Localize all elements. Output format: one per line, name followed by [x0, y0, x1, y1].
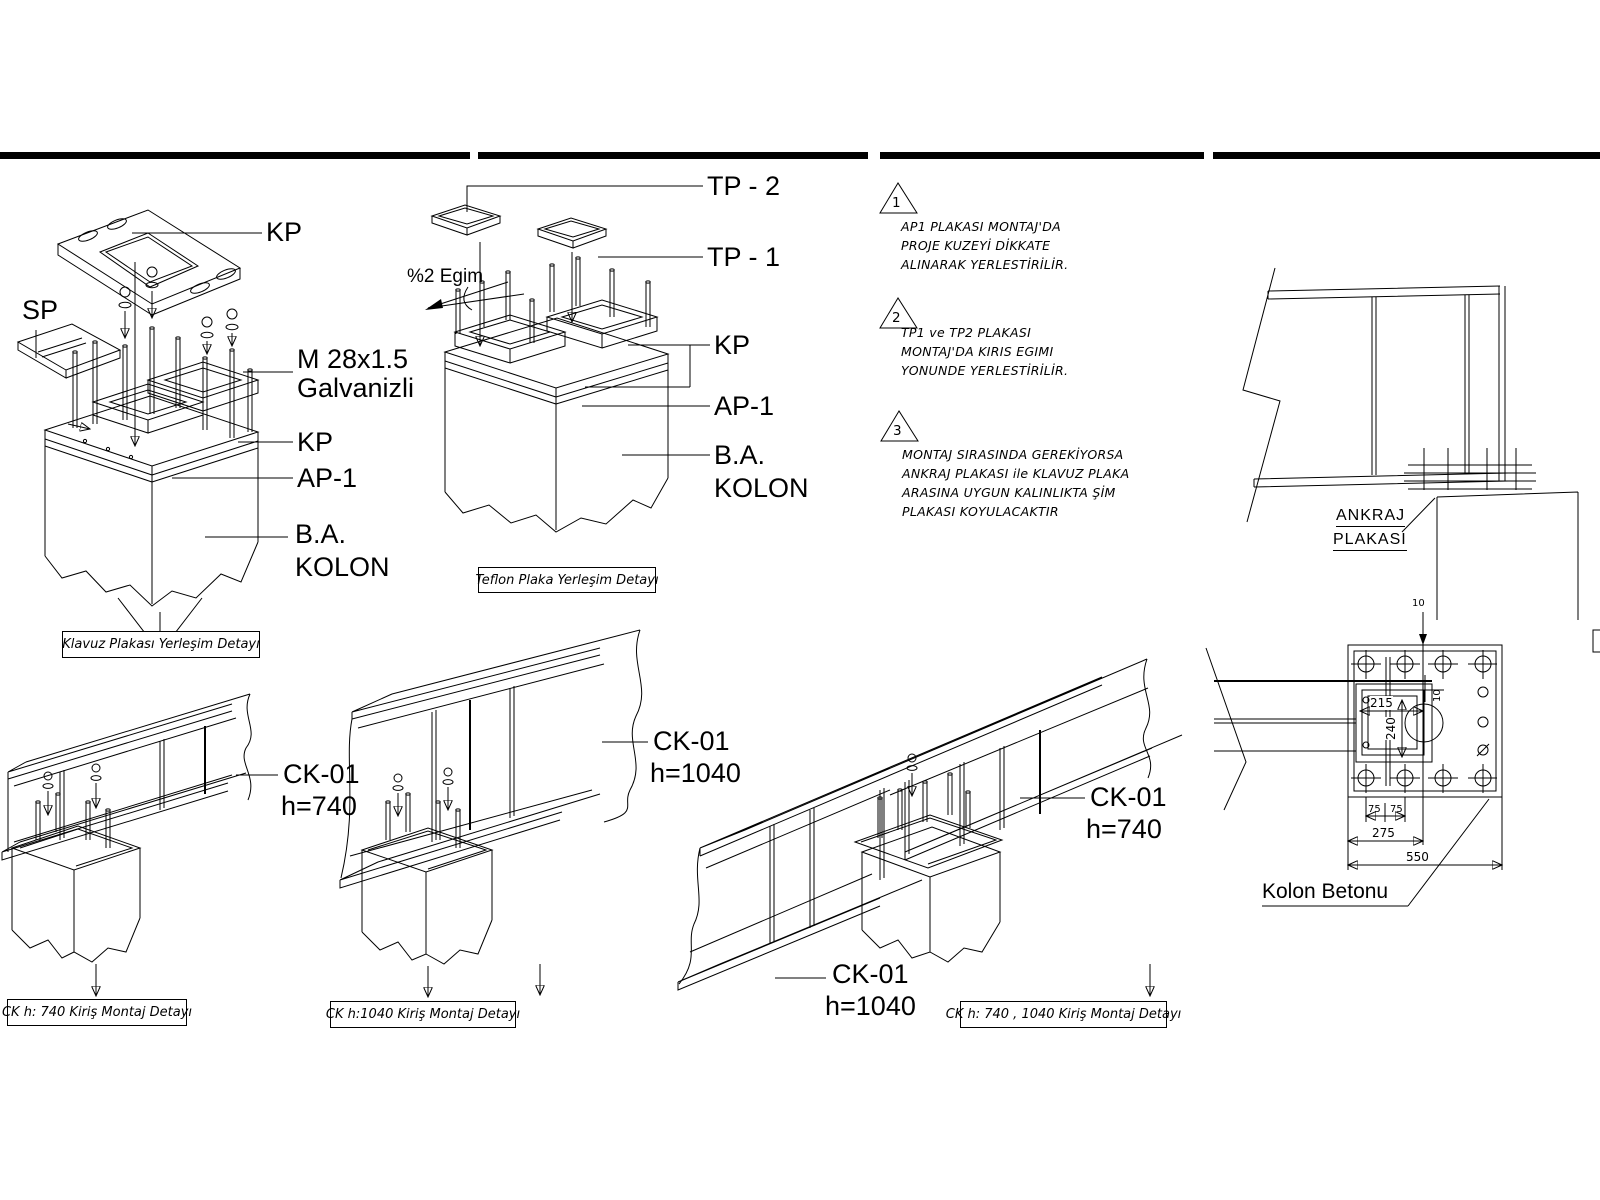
label-ck01-b2: CK-01 — [653, 727, 730, 755]
label-h1040-b3: h=1040 — [825, 992, 916, 1020]
note-2-number: 2 — [892, 310, 901, 326]
note-3-text: MONTAJ SIRASINDA GEREKİYORSA ANKRAJ PLAK… — [902, 445, 1129, 521]
label-kolon-b: KOLON — [714, 474, 809, 502]
note-3-line3: ARASINA UYGUN KALINLIKTA ŞİM — [902, 483, 1129, 502]
cad-linework — [0, 0, 1600, 1200]
detail-beam-740 — [2, 694, 278, 996]
label-ap1-b: AP-1 — [714, 392, 774, 420]
label-bolt-spec-line2: Galvanizli — [297, 374, 414, 402]
label-kp-top: KP — [266, 218, 302, 246]
dim-240: 240 — [1384, 717, 1398, 740]
note-3-number: 3 — [893, 423, 902, 439]
label-kolon-betonu: Kolon Betonu — [1262, 880, 1388, 904]
note-3-line4: PLAKASI KOYULACAKTIR — [902, 502, 1129, 521]
label-ck01-b3-bottom: CK-01 — [832, 960, 909, 988]
note-2-line3: YONUNDE YERLESTİRİLİR. — [901, 361, 1068, 380]
dim-75-left: 75 — [1368, 804, 1381, 815]
detail-ankraj-elevation — [1243, 268, 1578, 620]
label-ankraj-line2: PLAKASI — [1333, 531, 1407, 551]
label-ba: B.A. — [295, 520, 346, 548]
note-3-line2: ANKRAJ PLAKASI ile KLAVUZ PLAKA — [902, 464, 1129, 483]
label-egim: %2 Egim — [407, 266, 483, 288]
note-1-line1: AP1 PLAKASI MONTAJ'DA — [901, 217, 1068, 236]
label-ck01-b1: CK-01 — [283, 760, 360, 788]
label-sp: SP — [22, 296, 58, 324]
detail-teflon-plaka — [425, 186, 710, 532]
label-ankraj-line1: ANKRAJ — [1336, 507, 1405, 527]
dim-75-right: 75 — [1390, 804, 1403, 815]
drawing-sheet: KP SP M 28x1.5 Galvanizli KP AP-1 B.A. K… — [0, 0, 1600, 1200]
note-2-line2: MONTAJ'DA KIRIS EGIMI — [901, 342, 1068, 361]
dim-10-side: 10 — [1432, 689, 1443, 702]
label-kp-b: KP — [714, 331, 750, 359]
label-tp1: TP - 1 — [707, 243, 780, 271]
caption-beam-740: CK h: 740 Kiriş Montaj Detayı — [7, 999, 187, 1026]
dim-215: 215 — [1370, 696, 1393, 710]
note-1-number: 1 — [892, 195, 901, 211]
note-1-line2: PROJE KUZEYİ DİKKATE — [901, 236, 1068, 255]
caption-beam-combo: CK h: 740 , 1040 Kiriş Montaj Detayı — [960, 1001, 1167, 1028]
note-1-line3: ALINARAK YERLESTİRİLİR. — [901, 255, 1068, 274]
label-tp2: TP - 2 — [707, 172, 780, 200]
note-1-text: AP1 PLAKASI MONTAJ'DA PROJE KUZEYİ DİKKA… — [901, 217, 1068, 274]
caption-teflon: Teflon Plaka Yerleşim Detayı — [478, 567, 656, 593]
label-h740-b3: h=740 — [1086, 815, 1162, 843]
detail-klavuz-plakasi — [18, 210, 293, 656]
dim-275: 275 — [1372, 826, 1395, 840]
label-h1040-b2: h=1040 — [650, 759, 741, 787]
dim-10-top: 10 — [1412, 598, 1425, 609]
dim-550: 550 — [1406, 850, 1429, 864]
label-ba-b: B.A. — [714, 441, 765, 469]
note-2-text: TP1 ve TP2 PLAKASI MONTAJ'DA KIRIS EGIMI… — [901, 323, 1068, 380]
label-bolt-spec-line1: M 28x1.5 — [297, 345, 408, 373]
label-ck01-b3-top: CK-01 — [1090, 783, 1167, 811]
label-h740-b1: h=740 — [281, 792, 357, 820]
label-kolon: KOLON — [295, 553, 390, 581]
caption-beam-1040: CK h:1040 Kiriş Montaj Detayı — [330, 1001, 516, 1028]
note-3-line1: MONTAJ SIRASINDA GEREKİYORSA — [902, 445, 1129, 464]
caption-klavuz: Klavuz Plakası Yerleşim Detayı — [62, 631, 260, 658]
detail-anchor-plate-plan — [1206, 612, 1502, 906]
label-ap1: AP-1 — [297, 464, 357, 492]
detail-beam-1040 — [340, 630, 648, 997]
note-2-line1: TP1 ve TP2 PLAKASI — [901, 323, 1068, 342]
sheet-border-bars — [0, 152, 1600, 652]
label-kp-lower: KP — [297, 428, 333, 456]
